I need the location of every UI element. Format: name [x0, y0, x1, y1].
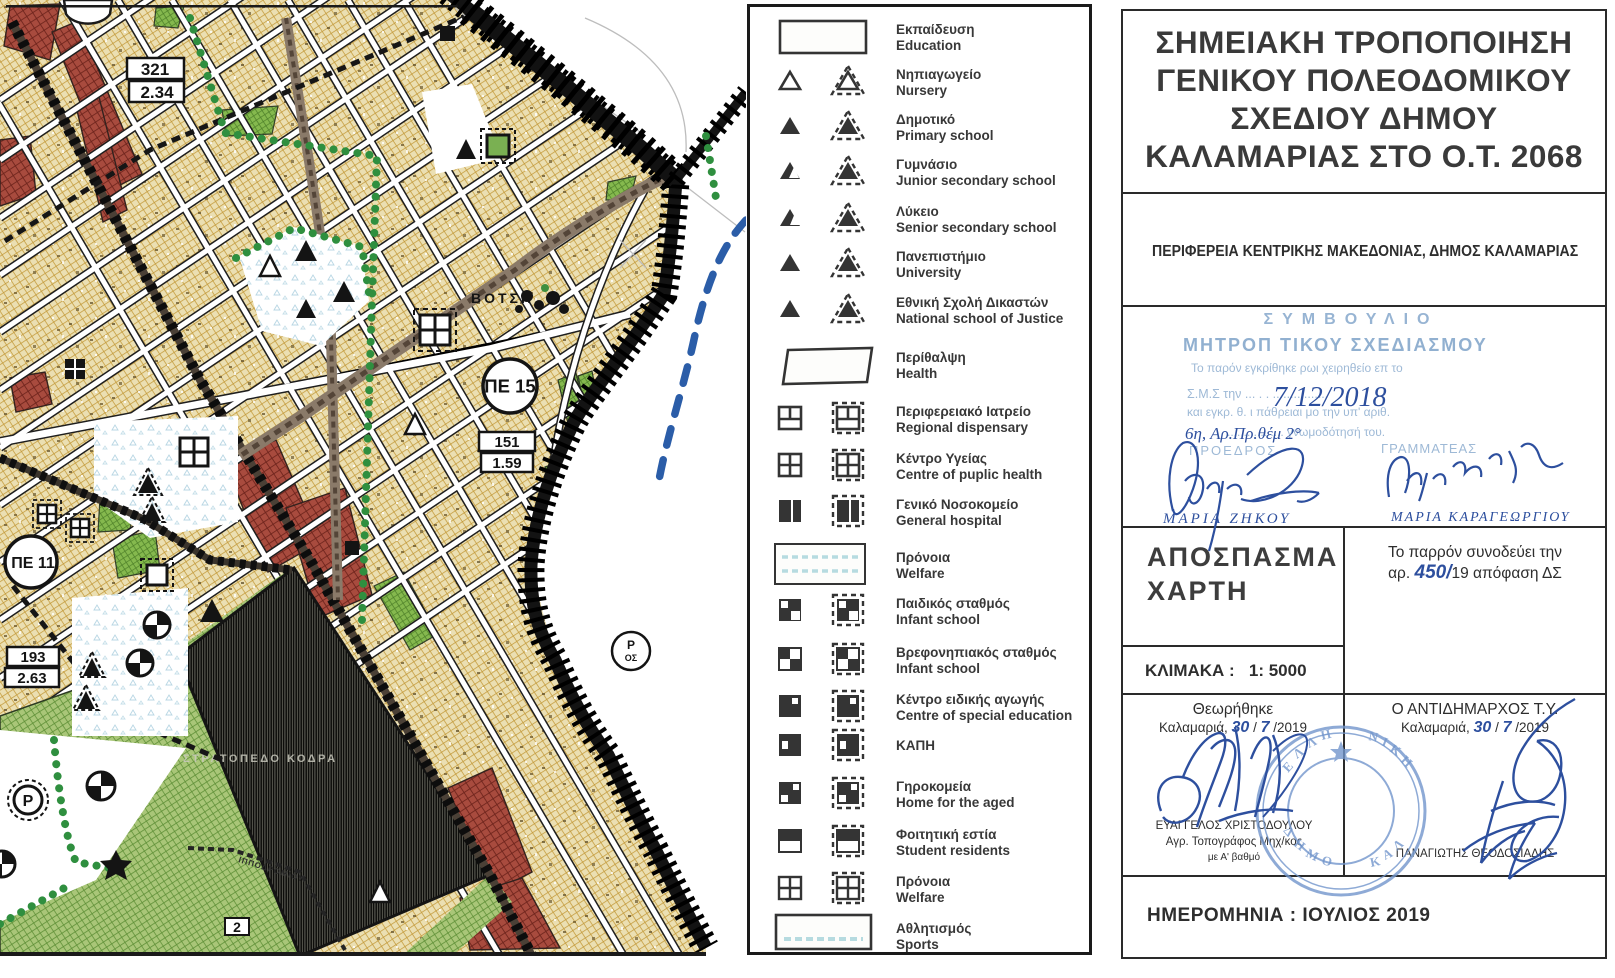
svg-text:Γενικό Νοσοκομείο: Γενικό Νοσοκομείο — [896, 497, 1018, 512]
svg-text:Regional dispensary: Regional dispensary — [896, 420, 1029, 435]
svg-text:2.34: 2.34 — [140, 83, 174, 102]
svg-text:Student residents: Student residents — [896, 843, 1010, 858]
svg-text:ΚΑΠΗ: ΚΑΠΗ — [896, 738, 935, 753]
svg-text:Εκπαίδευση: Εκπαίδευση — [896, 22, 974, 37]
svg-text:Γυμνάσιο: Γυμνάσιο — [896, 157, 957, 172]
svg-text:Centre of special education: Centre of special education — [896, 708, 1072, 723]
svg-text:Αθλητισμός: Αθλητισμός — [896, 921, 971, 936]
svg-text:Infant school: Infant school — [896, 661, 980, 676]
svg-text:6η, Αρ.Πρ.θέμ 2°: 6η, Αρ.Πρ.θέμ 2° — [1185, 424, 1301, 443]
svg-text:ΣΥΜΒΟΥΛΙΟ: ΣΥΜΒΟΥΛΙΟ — [1264, 311, 1439, 328]
svg-text:Κ: Κ — [1369, 853, 1383, 870]
svg-text:Welfare: Welfare — [896, 890, 945, 905]
svg-text:Περιφερειακό Ιατρείο: Περιφερειακό Ιατρείο — [896, 404, 1031, 419]
svg-text:Education: Education — [896, 38, 961, 53]
svg-text:Πανεπιστήμιο: Πανεπιστήμιο — [896, 249, 986, 264]
svg-text:ΜΑΡΙΑ ΖΗΚΟΥ: ΜΑΡΙΑ ΖΗΚΟΥ — [1162, 511, 1291, 527]
svg-text:2.63: 2.63 — [17, 670, 46, 687]
svg-text:Infant school: Infant school — [896, 612, 980, 627]
svg-text:P: P — [627, 638, 635, 652]
svg-text:193: 193 — [20, 649, 45, 666]
svg-text:ΟΣ: ΟΣ — [625, 653, 638, 663]
svg-text:Νηπιαγωγείο: Νηπιαγωγείο — [896, 67, 981, 82]
svg-text:Centre of puplic health: Centre of puplic health — [896, 467, 1042, 482]
svg-text:1.59: 1.59 — [492, 455, 521, 472]
svg-text:University: University — [896, 265, 962, 280]
svg-text:Ο: Ο — [1320, 852, 1333, 869]
svg-text:ΒΟΤΣΗ: ΒΟΤΣΗ — [471, 290, 534, 306]
svg-text:Primary school: Primary school — [896, 128, 994, 143]
svg-text:ΜΗΤΡΟΠ ΤΙΚΟΥ ΣΧΕΔΙΑΣΜΟΥ: ΜΗΤΡΟΠ ΤΙΚΟΥ ΣΧΕΔΙΑΣΜΟΥ — [1183, 335, 1488, 355]
svg-text:Α: Α — [1380, 845, 1396, 863]
svg-text:Γηροκομεία: Γηροκομεία — [896, 779, 972, 794]
svg-text:Φοιτητική εστία: Φοιτητική εστία — [896, 827, 997, 842]
svg-text:Παιδικός σταθμός: Παιδικός σταθμός — [896, 596, 1010, 611]
svg-text:Το παρόν εγκρίθηκε ρωι χειρηθ: Το παρόν εγκρίθηκε ρωι χειρηθείο επ το — [1191, 361, 1403, 375]
svg-text:Πρόνοια: Πρόνοια — [896, 874, 951, 889]
svg-text:321: 321 — [141, 60, 169, 79]
svg-text:Κέντρο ειδικής αγωγής: Κέντρο ειδικής αγωγής — [896, 692, 1044, 707]
svg-text:ΠΕ 15: ΠΕ 15 — [484, 376, 535, 397]
svg-text:Junior secondary school: Junior secondary school — [896, 173, 1056, 188]
svg-text:P: P — [23, 793, 34, 810]
svg-text:General hospital: General hospital — [896, 513, 1002, 528]
svg-text:Sports: Sports — [896, 937, 939, 952]
svg-text:Home for the aged: Home for the aged — [896, 795, 1015, 810]
svg-text:Πρόνοια: Πρόνοια — [896, 550, 951, 565]
svg-text:Εθνική Σχολή Δικαστών: Εθνική Σχολή Δικαστών — [896, 295, 1048, 310]
svg-text:Κέντρο Υγείας: Κέντρο Υγείας — [896, 451, 987, 466]
svg-text:Ε: Ε — [1279, 759, 1296, 775]
svg-text:ΠΡΟΕΔΡΟΣ: ΠΡΟΕΔΡΟΣ — [1189, 443, 1277, 458]
svg-text:Λύκειο: Λύκειο — [896, 204, 939, 219]
svg-text:7/12/2018: 7/12/2018 — [1273, 382, 1387, 413]
svg-text:151: 151 — [494, 434, 519, 451]
svg-text:ΜΑΡΙΑ ΚΑΡΑΓΕΩΡΓΙΟΥ: ΜΑΡΙΑ ΚΑΡΑΓΕΩΡΓΙΟΥ — [1390, 510, 1571, 525]
svg-text:Περίθαλψη: Περίθαλψη — [896, 350, 966, 365]
svg-text:Δημοτικό: Δημοτικό — [896, 112, 955, 127]
svg-text:Μ: Μ — [1304, 845, 1322, 864]
svg-text:Welfare: Welfare — [896, 566, 945, 581]
svg-text:Health: Health — [896, 366, 937, 381]
svg-text:Nursery: Nursery — [896, 83, 948, 98]
svg-text:2: 2 — [233, 919, 241, 935]
svg-text:ΓΡΑΜΜΑΤΕΑΣ: ΓΡΑΜΜΑΤΕΑΣ — [1381, 441, 1477, 456]
svg-text:Λ: Λ — [1390, 835, 1407, 853]
svg-text:ΠΕ 11: ΠΕ 11 — [11, 555, 55, 572]
svg-text:Senior secondary school: Senior secondary school — [896, 220, 1057, 235]
svg-text:Βρεφονηπιακός σταθμός: Βρεφονηπιακός σταθμός — [896, 645, 1057, 660]
svg-text:National school of Justice: National school of Justice — [896, 311, 1064, 326]
